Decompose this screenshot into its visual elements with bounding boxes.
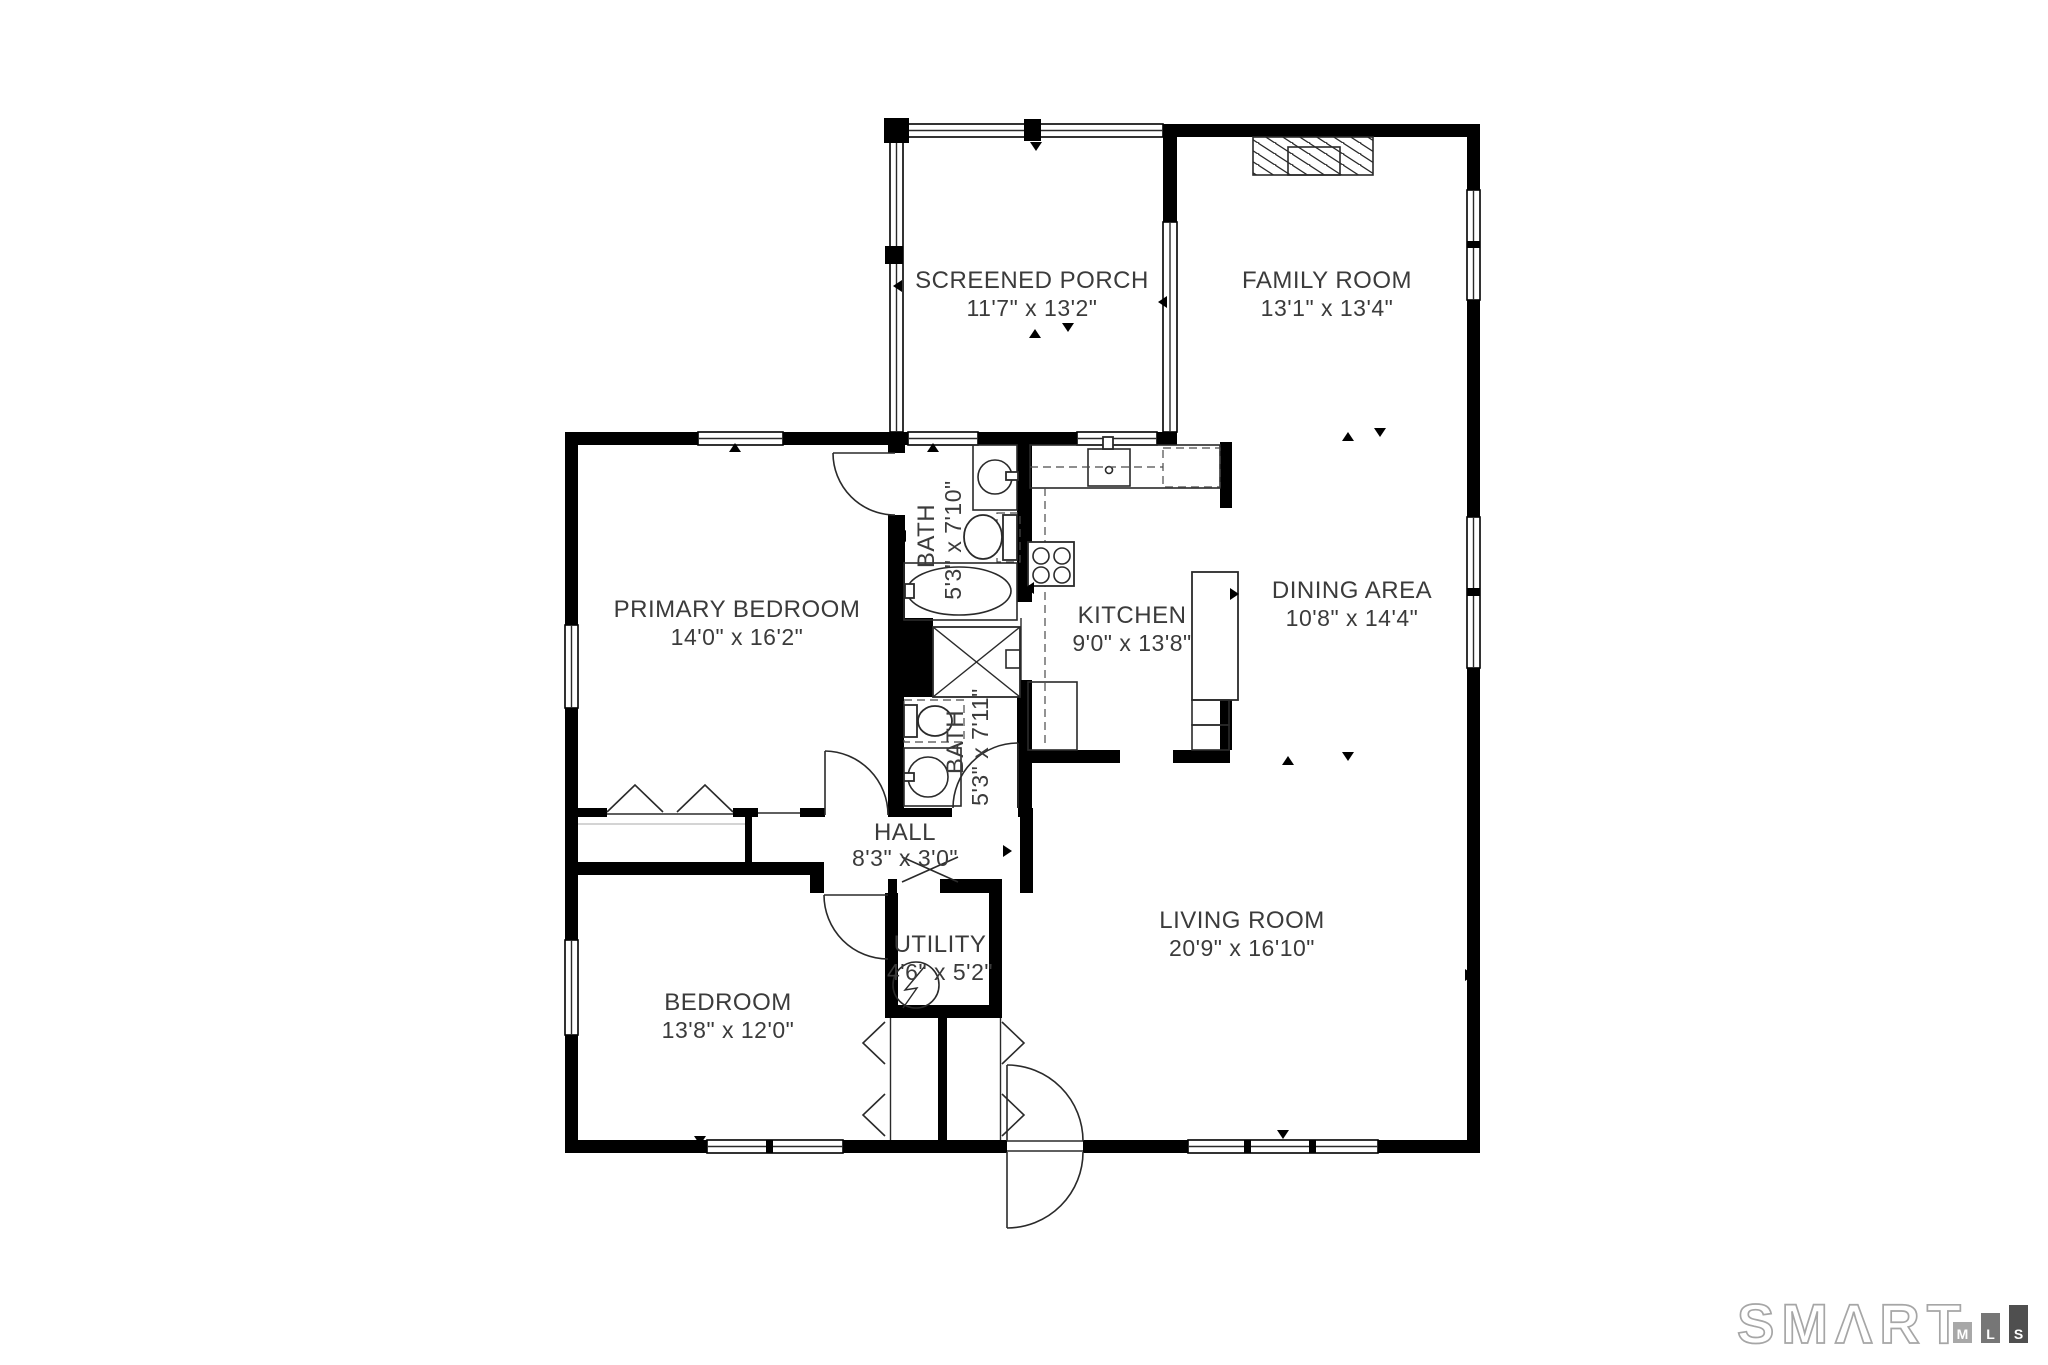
living-room-window (1188, 1140, 1378, 1153)
toilet (964, 515, 1017, 560)
room-label-hall: HALL (874, 819, 936, 846)
room-label-bath1: BATH (913, 504, 940, 568)
room-label-utility: UTILITY (894, 931, 987, 958)
room-dims-living-room: 20'9" x 16'10" (1169, 935, 1315, 961)
room-dims-family-room: 13'1" x 13'4" (1261, 295, 1394, 321)
room-label-kitchen: KITCHEN (1078, 602, 1187, 629)
markers (694, 280, 1474, 1145)
bedroom-bottom-window (707, 1140, 843, 1153)
bedroom-door (824, 895, 888, 959)
room-label-screened-porch: SCREENED PORCH (915, 267, 1149, 294)
bedroom-left-window (565, 940, 578, 1035)
room-dims-utility: 4'6" x 5'2" (887, 959, 993, 985)
mls-letter-m: M (1957, 1326, 1969, 1342)
chimney-mass (888, 618, 933, 697)
corner-cabinet (1028, 682, 1077, 750)
room-dims-bath1: 5'3" x 7'10" (940, 480, 966, 599)
room-dims-dining-area: 10'8" x 14'4" (1286, 605, 1419, 631)
primary-bedroom-door (825, 751, 888, 815)
bath-top-window (908, 432, 978, 445)
room-label-family-room: FAMILY ROOM (1242, 267, 1412, 294)
primary-closet-bifold (578, 785, 800, 824)
primary-bath-door (833, 453, 895, 515)
porch-post (884, 118, 909, 143)
primary-bedroom-top-window (698, 432, 783, 445)
room-label-dining-area: DINING AREA (1272, 577, 1432, 604)
room-dims-hall: 8'3" x 3'0" (852, 845, 958, 871)
upper-cabinet-dashed (1163, 448, 1220, 487)
mls-letter-s: S (2014, 1326, 2023, 1342)
porch-post (1024, 119, 1041, 141)
smartmls-brand-text: SMΛRT (1737, 1292, 1968, 1355)
kitchen-window (1077, 432, 1157, 445)
fireplace (1253, 137, 1373, 175)
room-labels: SCREENED PORCH 11'7" x 13'2" FAMILY ROOM… (614, 267, 1432, 1043)
dining-window (1467, 517, 1480, 668)
room-dims-screened-porch: 11'7" x 13'2" (967, 295, 1098, 321)
floorplan-drawing: SCREENED PORCH 11'7" x 13'2" FAMILY ROOM… (0, 0, 2048, 1365)
room-dims-kitchen: 9'0" x 13'8" (1072, 630, 1191, 656)
primary-bedroom-left-window (565, 625, 578, 708)
room-label-bedroom: BEDROOM (664, 989, 792, 1016)
room-dims-bath2: 5'3" x 7'11" (967, 688, 993, 806)
linen-closet-x (933, 627, 1020, 697)
stove (1028, 542, 1074, 586)
front-door (1007, 1065, 1083, 1228)
kitchen-fixtures (1028, 437, 1238, 750)
room-dims-bedroom: 13'8" x 12'0" (662, 1017, 795, 1043)
porch-post (885, 246, 903, 264)
room-label-living-room: LIVING ROOM (1159, 907, 1325, 934)
smartmls-logo: SMΛRT M L S (1737, 1292, 2028, 1355)
room-label-bath2: BATH (942, 710, 969, 774)
room-dims-primary-bedroom: 14'0" x 16'2" (671, 624, 804, 650)
family-room-window (1467, 190, 1480, 300)
floorplan-canvas: SCREENED PORCH 11'7" x 13'2" FAMILY ROOM… (0, 0, 2048, 1365)
room-label-primary-bedroom: PRIMARY BEDROOM (614, 596, 861, 623)
mls-letter-l: L (1986, 1326, 1995, 1342)
